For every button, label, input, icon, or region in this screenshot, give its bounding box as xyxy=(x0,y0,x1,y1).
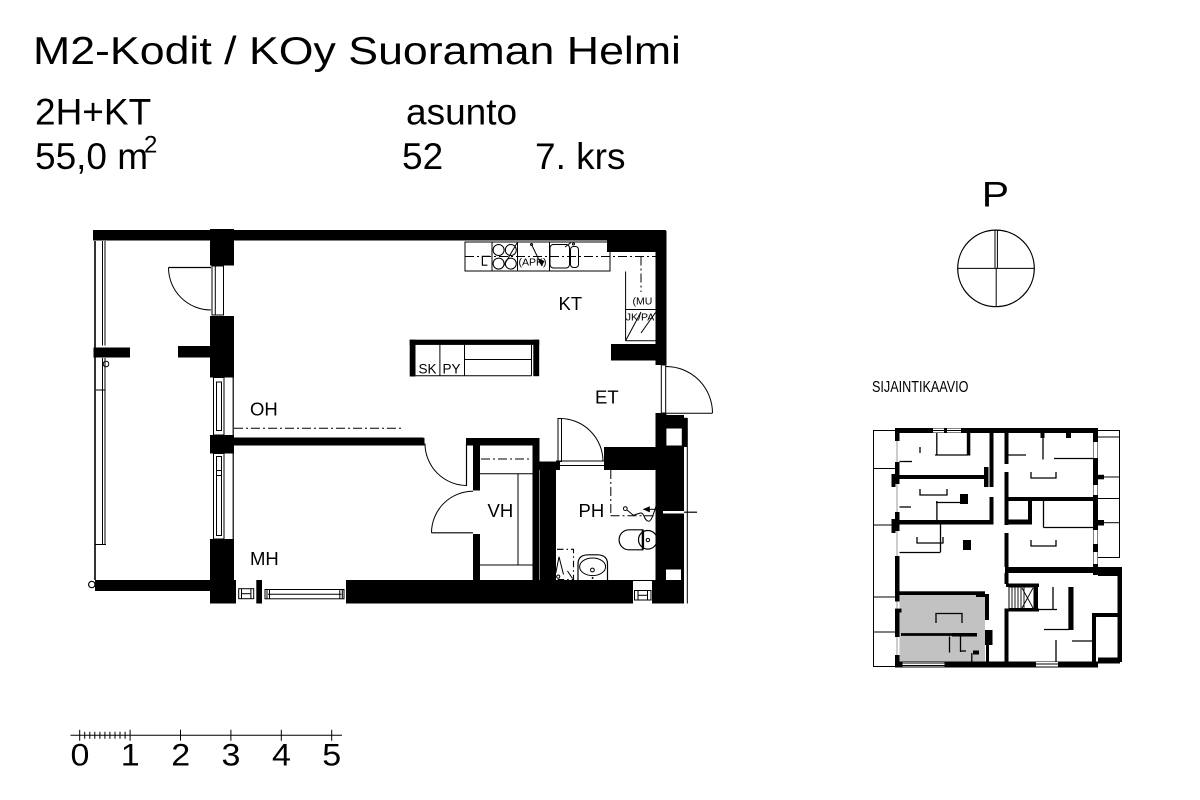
svg-text:OH: OH xyxy=(250,399,278,420)
svg-text:7. krs: 7. krs xyxy=(535,136,625,177)
svg-text:SIJAINTIKAAVIO: SIJAINTIKAAVIO xyxy=(872,379,969,396)
svg-text:0: 0 xyxy=(70,737,89,773)
svg-text:P: P xyxy=(982,176,1009,215)
svg-text:PY: PY xyxy=(443,362,461,377)
svg-text:ET: ET xyxy=(595,387,619,408)
svg-text:SK: SK xyxy=(419,362,437,377)
svg-text:asunto: asunto xyxy=(406,92,517,133)
svg-text:M2-Kodit / KOy Suoraman Helmi: M2-Kodit / KOy Suoraman Helmi xyxy=(33,30,681,73)
svg-text:KT: KT xyxy=(559,293,583,314)
svg-text:2: 2 xyxy=(171,737,190,773)
svg-text:(MU: (MU xyxy=(633,296,653,308)
svg-text:2H+KT: 2H+KT xyxy=(35,92,151,133)
svg-text:PH: PH xyxy=(579,500,605,521)
svg-text:MH: MH xyxy=(250,548,279,569)
svg-text:4: 4 xyxy=(272,737,291,773)
svg-text:1: 1 xyxy=(121,737,140,773)
svg-text:52: 52 xyxy=(402,136,443,177)
svg-text:5: 5 xyxy=(322,737,341,773)
svg-text:55,0 m: 55,0 m xyxy=(35,136,148,177)
svg-text:VH: VH xyxy=(488,500,514,521)
svg-text:2: 2 xyxy=(144,132,157,159)
svg-text:3: 3 xyxy=(222,737,241,773)
